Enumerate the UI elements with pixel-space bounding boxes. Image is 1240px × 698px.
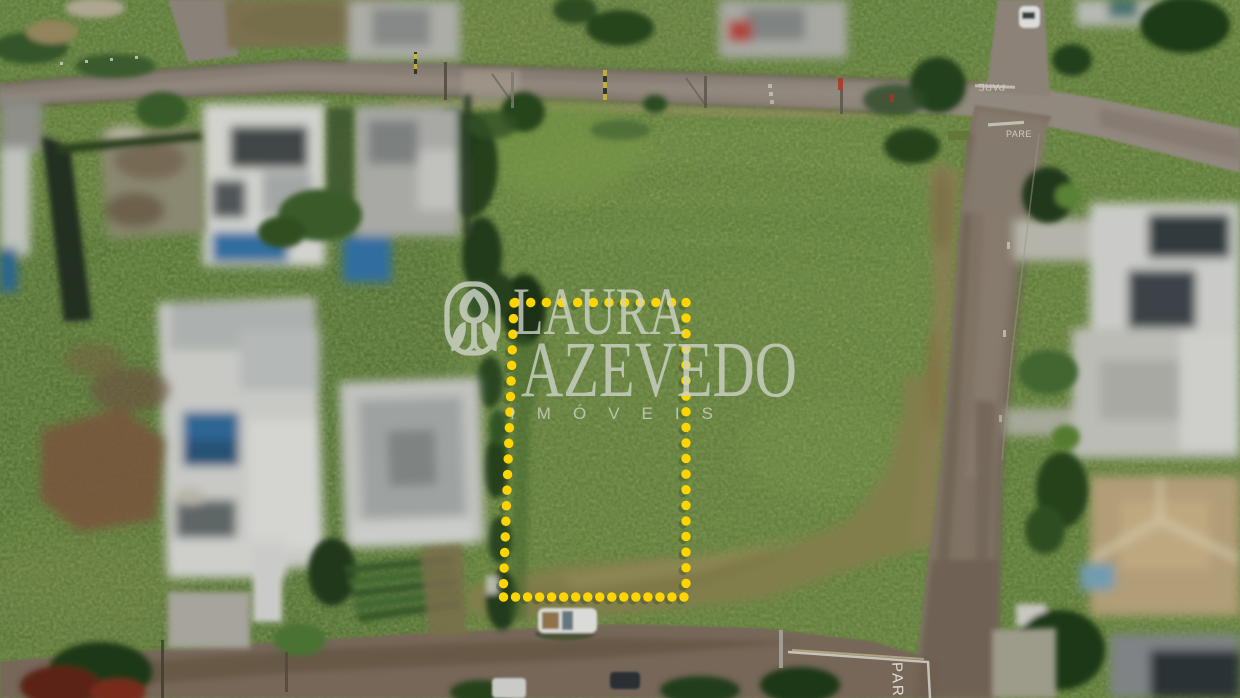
svg-text:AZEVEDO: AZEVEDO [521, 327, 797, 414]
